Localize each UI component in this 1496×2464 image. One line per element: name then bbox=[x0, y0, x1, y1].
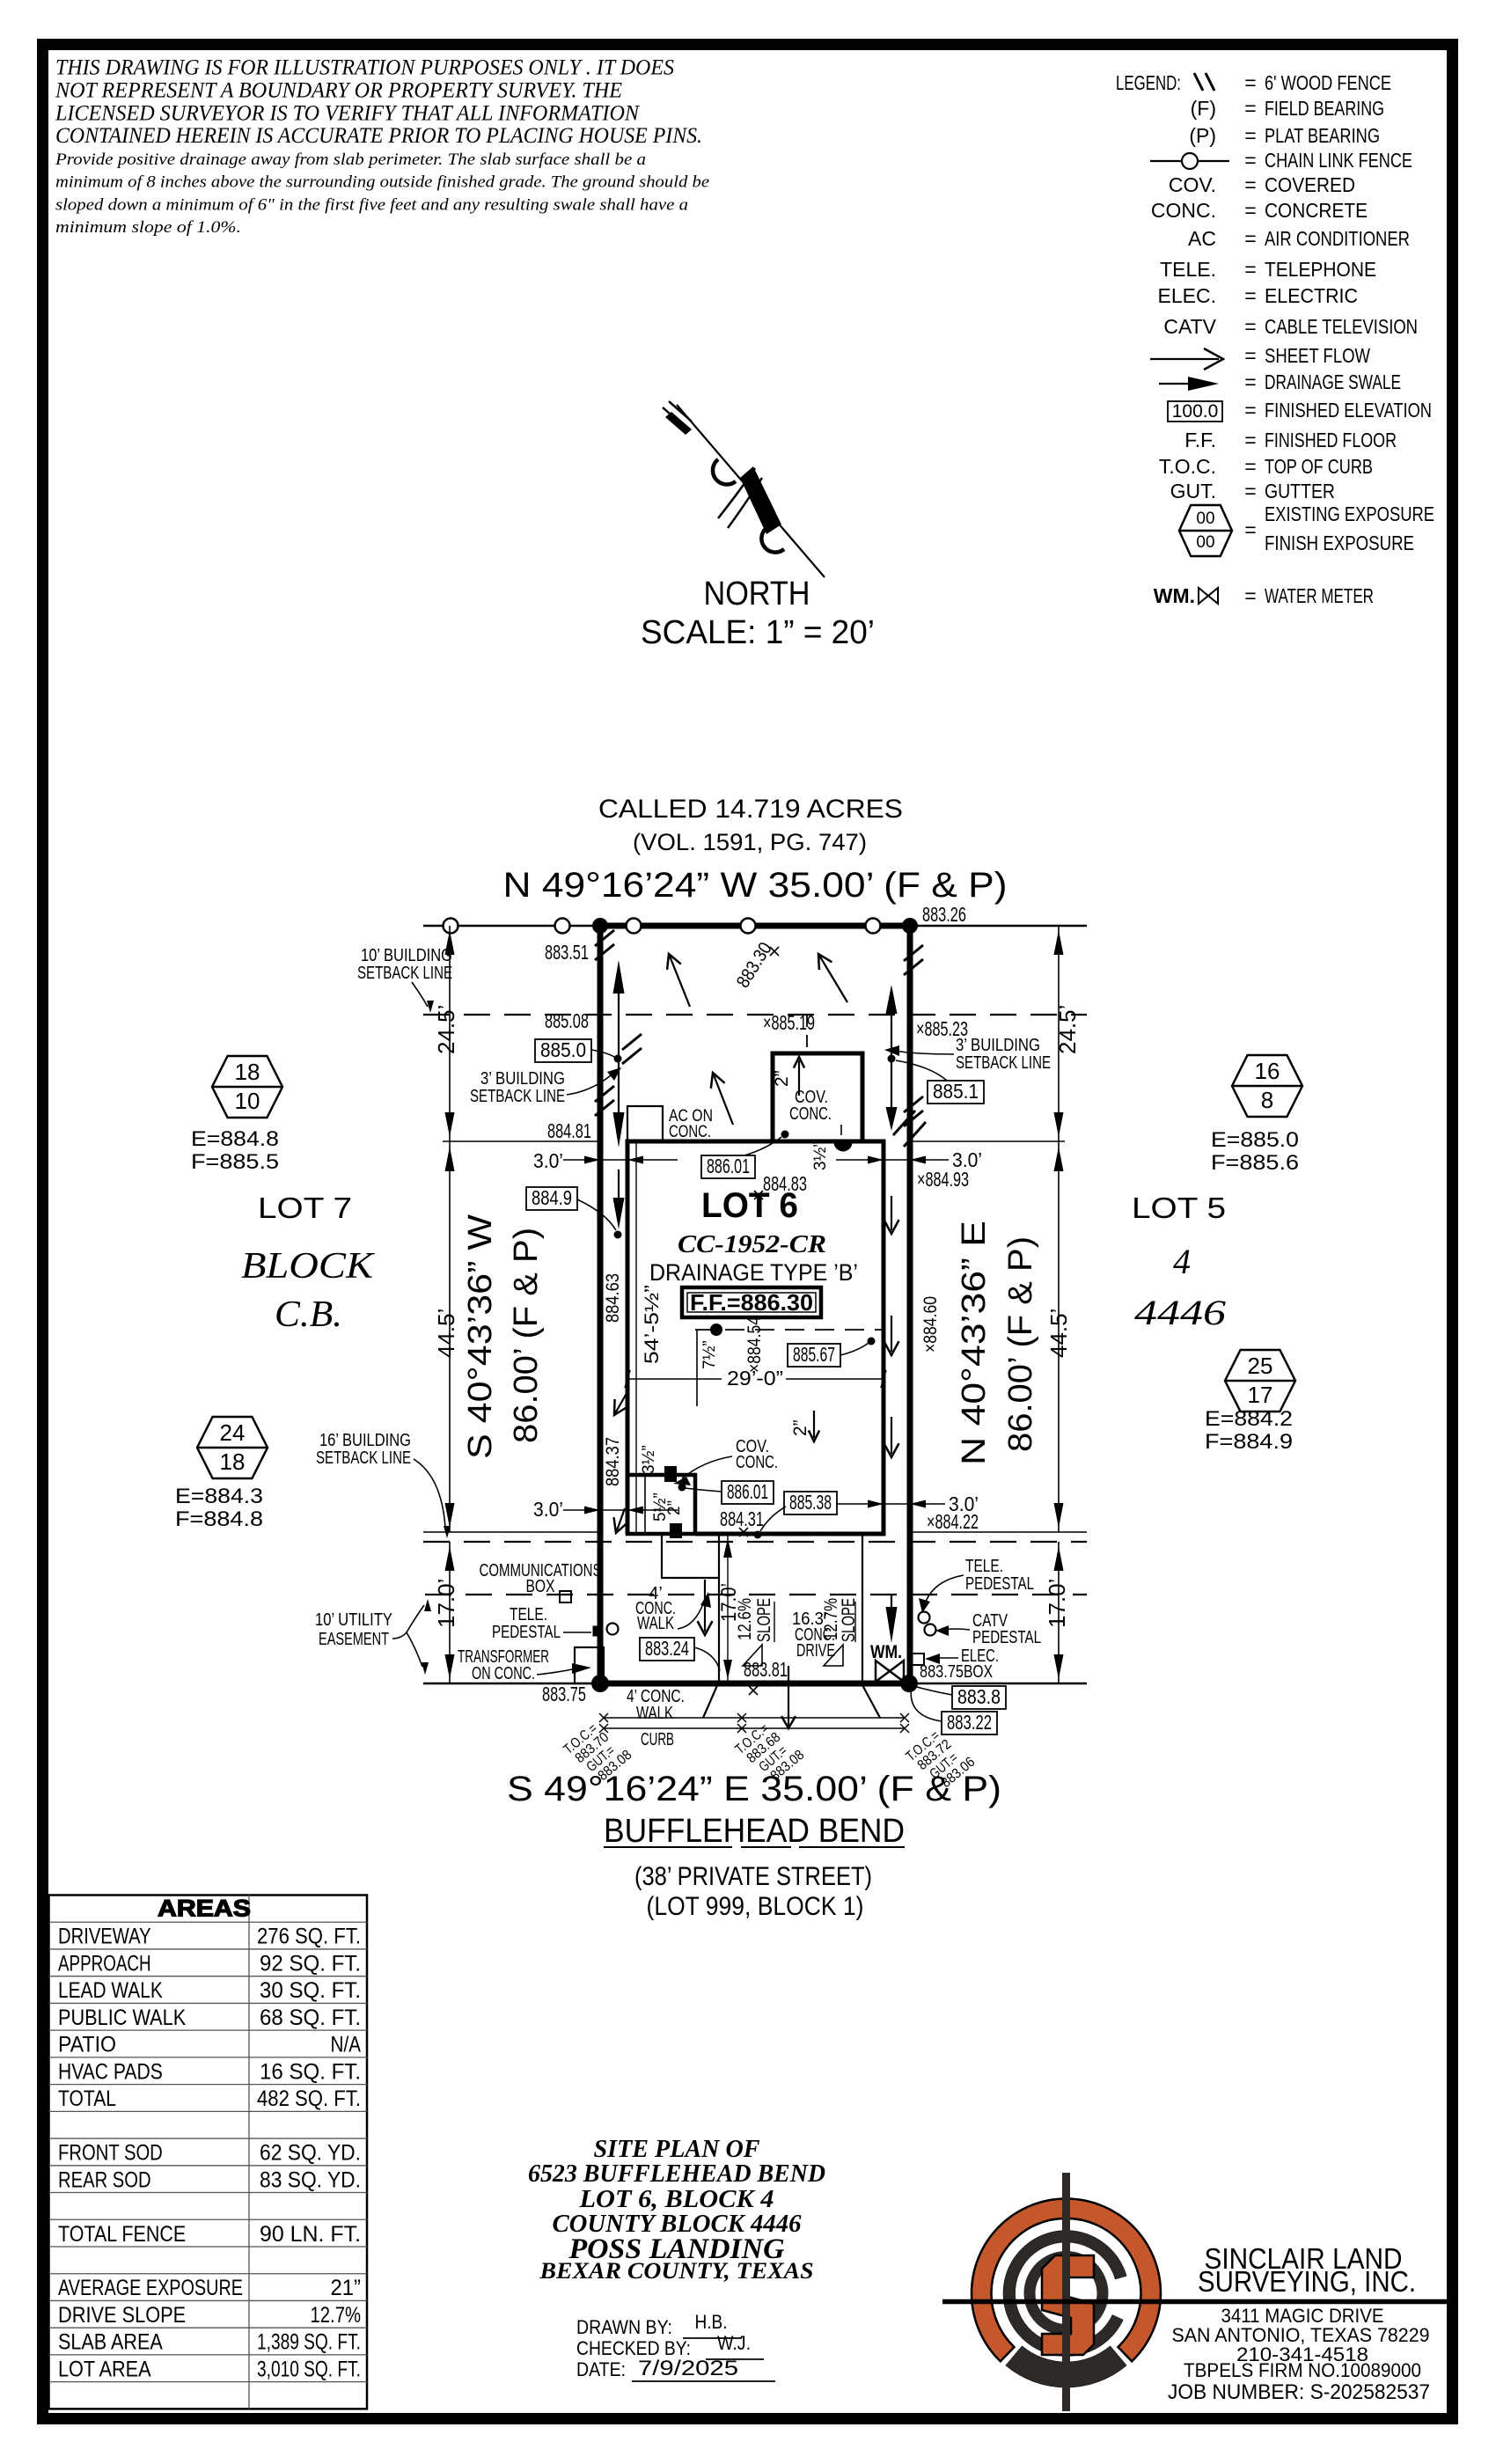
svg-text:883.81: 883.81 bbox=[744, 1658, 788, 1681]
svg-text:24.5’: 24.5’ bbox=[433, 1005, 459, 1054]
svg-text:COVERED: COVERED bbox=[1265, 173, 1355, 196]
svg-text:17.0’: 17.0’ bbox=[1044, 1579, 1070, 1628]
svg-text:CURB: CURB bbox=[641, 1730, 674, 1749]
svg-text:10: 10 bbox=[235, 1088, 260, 1114]
svg-text:62 SQ. YD.: 62 SQ. YD. bbox=[260, 2141, 361, 2166]
svg-text:SLAB AREA: SLAB AREA bbox=[58, 2330, 163, 2355]
svg-text:FINISHED FLOOR: FINISHED FLOOR bbox=[1265, 429, 1397, 451]
svg-text:886.01: 886.01 bbox=[707, 1155, 750, 1177]
svg-text:NORTH: NORTH bbox=[704, 576, 810, 612]
svg-text:CATV: CATV bbox=[1163, 315, 1216, 338]
svg-text:885.1: 885.1 bbox=[933, 1080, 979, 1103]
svg-text:E=884.8: E=884.8 bbox=[191, 1127, 279, 1151]
svg-text:=: = bbox=[1244, 518, 1256, 541]
svg-text:APPROACH: APPROACH bbox=[58, 1951, 151, 1976]
svg-text:PLAT BEARING: PLAT BEARING bbox=[1265, 124, 1380, 147]
svg-text:SHEET FLOW: SHEET FLOW bbox=[1265, 344, 1370, 367]
svg-text:E=884.3: E=884.3 bbox=[175, 1485, 263, 1508]
svg-text:CONC.: CONC. bbox=[789, 1104, 832, 1124]
svg-text:54’-5½”: 54’-5½” bbox=[641, 1285, 663, 1364]
svg-text:LEAD WALK: LEAD WALK bbox=[58, 1978, 163, 2003]
svg-text:LOT 7: LOT 7 bbox=[258, 1192, 352, 1224]
svg-text:×884.22: ×884.22 bbox=[927, 1510, 979, 1533]
svg-text:(P): (P) bbox=[1189, 124, 1216, 147]
svg-text:AIR CONDITIONER: AIR CONDITIONER bbox=[1265, 227, 1410, 250]
svg-text:×884.54: ×884.54 bbox=[744, 1316, 765, 1373]
svg-text:TBPELS FIRM NO.10089000: TBPELS FIRM NO.10089000 bbox=[1184, 2359, 1421, 2381]
svg-text:NOT REPRESENT A BOUNDARY OR PR: NOT REPRESENT A BOUNDARY OR PROPERTY SUR… bbox=[55, 78, 622, 102]
svg-text:T.O.C.: T.O.C. bbox=[1159, 455, 1216, 478]
svg-text:S 49°16’24” E 35.00’ (F &: S 49°16’24” E 35.00’ (F & P) bbox=[507, 1770, 1001, 1808]
svg-text:=: = bbox=[1244, 584, 1256, 607]
svg-text:E=885.0: E=885.0 bbox=[1211, 1128, 1299, 1152]
svg-text:2”: 2” bbox=[772, 1070, 792, 1087]
svg-text:3’ BUILDING: 3’ BUILDING bbox=[956, 1036, 1040, 1055]
svg-text:68 SQ. FT.: 68 SQ. FT. bbox=[260, 2006, 361, 2030]
svg-text:3’ BUILDING: 3’ BUILDING bbox=[480, 1069, 565, 1089]
svg-text:F.F.: F.F. bbox=[1184, 429, 1216, 451]
svg-text:F=884.8: F=884.8 bbox=[175, 1507, 263, 1531]
svg-text:PUBLIC WALK: PUBLIC WALK bbox=[58, 2006, 186, 2030]
svg-text:CALLED 14.719 ACRES: CALLED 14.719 ACRES bbox=[598, 795, 903, 824]
svg-text:86.00’ (F & P): 86.00’ (F & P) bbox=[508, 1228, 545, 1443]
svg-text:44.5’: 44.5’ bbox=[433, 1309, 459, 1358]
svg-text:SETBACK LINE: SETBACK LINE bbox=[956, 1053, 1051, 1073]
svg-text:(VOL. 1591, PG. 747): (VOL. 1591, PG. 747) bbox=[633, 829, 867, 855]
svg-text:276 SQ. FT.: 276 SQ. FT. bbox=[257, 1925, 361, 1949]
svg-text:884.37: 884.37 bbox=[603, 1437, 623, 1486]
svg-text:BUFFLEHEAD BEND: BUFFLEHEAD BEND bbox=[604, 1813, 905, 1850]
svg-text:F=885.6: F=885.6 bbox=[1211, 1151, 1299, 1175]
svg-text:LOT 6: LOT 6 bbox=[701, 1186, 798, 1225]
svg-text:=: = bbox=[1244, 124, 1256, 147]
svg-text:HVAC PADS: HVAC PADS bbox=[58, 2059, 163, 2084]
svg-text:883.75: 883.75 bbox=[920, 1662, 964, 1682]
svg-text:6523 BUFFLEHEAD BEND: 6523 BUFFLEHEAD BEND bbox=[528, 2160, 825, 2188]
svg-text:44.5’: 44.5’ bbox=[1045, 1309, 1072, 1358]
svg-text:883.75: 883.75 bbox=[542, 1683, 586, 1705]
svg-text:=: = bbox=[1244, 199, 1256, 222]
svg-text:30 SQ. FT.: 30 SQ. FT. bbox=[260, 1978, 361, 2003]
svg-text:=: = bbox=[1244, 455, 1256, 478]
svg-text:=: = bbox=[1244, 149, 1256, 172]
svg-text:100.0: 100.0 bbox=[1172, 401, 1219, 422]
svg-text:FRONT SOD: FRONT SOD bbox=[58, 2141, 163, 2166]
svg-text:=: = bbox=[1244, 399, 1256, 422]
svg-text:THIS DRAWING IS FOR ILLUSTRATI: THIS DRAWING IS FOR ILLUSTRATION PURPOSE… bbox=[55, 56, 674, 80]
svg-text:SETBACK LINE: SETBACK LINE bbox=[470, 1087, 565, 1106]
svg-text:00: 00 bbox=[1196, 510, 1214, 528]
svg-text:C.B.: C.B. bbox=[275, 1294, 342, 1335]
svg-text:SETBACK LINE: SETBACK LINE bbox=[316, 1448, 411, 1468]
svg-text:BOX: BOX bbox=[526, 1577, 555, 1596]
svg-text:minimum of 8 inches above the: minimum of 8 inches above the surroundin… bbox=[55, 173, 709, 192]
svg-text:=: = bbox=[1244, 429, 1256, 451]
svg-text:TOP OF CURB: TOP OF CURB bbox=[1265, 455, 1373, 478]
svg-text:1,389 SQ. FT.: 1,389 SQ. FT. bbox=[257, 2330, 361, 2355]
svg-text:PEDESTAL: PEDESTAL bbox=[972, 1628, 1041, 1647]
svg-text:CONC.: CONC. bbox=[1151, 199, 1216, 222]
svg-text:LEGEND:: LEGEND: bbox=[1116, 71, 1181, 94]
svg-text:Provide positive drainage away: Provide positive drainage away from slab… bbox=[55, 150, 646, 169]
svg-text:PEDESTAL: PEDESTAL bbox=[492, 1623, 561, 1642]
svg-text:TELE.: TELE. bbox=[1160, 258, 1216, 281]
svg-text:17.0’: 17.0’ bbox=[433, 1579, 459, 1628]
svg-text:EASEMENT: EASEMENT bbox=[319, 1630, 389, 1649]
svg-text:883.26: 883.26 bbox=[922, 903, 966, 926]
svg-text:S 40°43’36” W: S 40°43’36” W bbox=[462, 1214, 499, 1459]
svg-text:3,010 SQ. FT.: 3,010 SQ. FT. bbox=[257, 2357, 361, 2381]
svg-text:4: 4 bbox=[1173, 1242, 1191, 1281]
svg-text:N 49°16’24” W 35.00’ (F &: N 49°16’24” W 35.00’ (F & P) bbox=[503, 866, 1008, 905]
svg-text:883.8: 883.8 bbox=[957, 1685, 1001, 1708]
svg-text:885.0: 885.0 bbox=[540, 1038, 586, 1061]
svg-text:=: = bbox=[1244, 71, 1256, 94]
svg-text:17.0’: 17.0’ bbox=[717, 1583, 741, 1622]
svg-text:18: 18 bbox=[235, 1059, 260, 1085]
svg-text:×884.93: ×884.93 bbox=[917, 1168, 969, 1191]
svg-text:N/A: N/A bbox=[331, 2033, 362, 2057]
svg-text:12.7%: 12.7% bbox=[311, 2303, 362, 2328]
svg-text:24: 24 bbox=[220, 1419, 246, 1446]
svg-text:SURVEYING, INC.: SURVEYING, INC. bbox=[1198, 2265, 1416, 2298]
svg-text:92 SQ. FT.: 92 SQ. FT. bbox=[260, 1951, 361, 1976]
svg-text:E=884.2: E=884.2 bbox=[1205, 1407, 1293, 1431]
svg-text:25: 25 bbox=[1248, 1353, 1273, 1379]
svg-text:AREAS: AREAS bbox=[158, 1896, 251, 1922]
svg-text:PATIO: PATIO bbox=[58, 2033, 116, 2057]
svg-text:DRAWN BY:: DRAWN BY: bbox=[576, 2316, 672, 2338]
svg-text:885.67: 885.67 bbox=[793, 1343, 835, 1366]
svg-text:LICENSED SURVEYOR IS TO VERIFY: LICENSED SURVEYOR IS TO VERIFY THAT ALL … bbox=[55, 101, 640, 125]
svg-text:3.0’: 3.0’ bbox=[533, 1149, 563, 1172]
svg-text:CONC.: CONC. bbox=[736, 1453, 778, 1472]
svg-text:BOX: BOX bbox=[964, 1662, 993, 1682]
svg-text:×885.19: ×885.19 bbox=[763, 1011, 815, 1034]
svg-text:884.31: 884.31 bbox=[720, 1507, 764, 1530]
svg-text:83 SQ. YD.: 83 SQ. YD. bbox=[260, 2167, 361, 2192]
svg-text:2”: 2” bbox=[790, 1419, 810, 1436]
svg-text:CHAIN LINK FENCE: CHAIN LINK FENCE bbox=[1265, 149, 1412, 172]
svg-text:ELECTRIC: ELECTRIC bbox=[1265, 284, 1358, 307]
svg-text:18: 18 bbox=[220, 1448, 246, 1475]
svg-text:LOT 5: LOT 5 bbox=[1132, 1192, 1226, 1224]
svg-text:SETBACK LINE: SETBACK LINE bbox=[357, 964, 452, 983]
svg-text:DATE:: DATE: bbox=[576, 2358, 626, 2380]
svg-text:=: = bbox=[1244, 315, 1256, 338]
svg-text:=: = bbox=[1244, 97, 1256, 120]
svg-text:884.63: 884.63 bbox=[603, 1273, 623, 1323]
svg-text:=: = bbox=[1244, 370, 1256, 393]
svg-text:90 LN. FT.: 90 LN. FT. bbox=[260, 2222, 361, 2247]
svg-text:(F): (F) bbox=[1191, 97, 1216, 120]
svg-text:6' WOOD FENCE: 6' WOOD FENCE bbox=[1265, 71, 1391, 94]
svg-text:DRIVE SLOPE: DRIVE SLOPE bbox=[58, 2303, 186, 2328]
svg-text:884.81: 884.81 bbox=[547, 1119, 591, 1142]
svg-text:REAR SOD: REAR SOD bbox=[58, 2167, 151, 2192]
svg-text:16: 16 bbox=[1255, 1058, 1280, 1084]
svg-text:CONCRETE: CONCRETE bbox=[1265, 199, 1368, 222]
svg-text:CONTAINED HEREIN IS ACCURATE P: CONTAINED HEREIN IS ACCURATE PRIOR TO PL… bbox=[55, 124, 702, 148]
svg-text:16 SQ. FT.: 16 SQ. FT. bbox=[260, 2059, 361, 2084]
svg-text:CONC.: CONC. bbox=[669, 1123, 711, 1141]
svg-text:885.08: 885.08 bbox=[545, 1009, 589, 1032]
svg-text:FIELD BEARING: FIELD BEARING bbox=[1265, 97, 1384, 120]
svg-text:=: = bbox=[1244, 344, 1256, 367]
svg-text:DRIVE: DRIVE bbox=[796, 1641, 835, 1661]
svg-text:24.5’: 24.5’ bbox=[1054, 1005, 1081, 1054]
svg-text:WALK: WALK bbox=[636, 1704, 673, 1723]
svg-text:=: = bbox=[1244, 227, 1256, 250]
svg-text:886.01: 886.01 bbox=[727, 1480, 768, 1503]
svg-text:SLOPE: SLOPE bbox=[754, 1598, 774, 1642]
svg-text:W.J.: W.J. bbox=[717, 2332, 751, 2354]
svg-text:sloped down a minimum of 6" in: sloped down a minimum of 6" in the first… bbox=[55, 195, 688, 214]
svg-text:883.22: 883.22 bbox=[947, 1711, 992, 1734]
svg-text:WATER METER: WATER METER bbox=[1265, 584, 1374, 607]
svg-text:21”: 21” bbox=[331, 2276, 362, 2300]
svg-text:TELE.: TELE. bbox=[965, 1557, 1003, 1576]
svg-text:WM.: WM. bbox=[1154, 584, 1195, 607]
svg-text:COV.: COV. bbox=[1169, 173, 1216, 196]
svg-text:F.F.=886.30: F.F.=886.30 bbox=[690, 1289, 813, 1316]
svg-text:H.B.: H.B. bbox=[695, 2311, 728, 2333]
svg-text:TELE.: TELE. bbox=[510, 1605, 547, 1624]
svg-text:(LOT 999, BLOCK 1): (LOT 999, BLOCK 1) bbox=[647, 1892, 864, 1921]
svg-text:3½”: 3½” bbox=[811, 1141, 830, 1170]
svg-text:3.0’: 3.0’ bbox=[533, 1498, 563, 1521]
svg-text:00: 00 bbox=[1196, 533, 1214, 552]
svg-text:GUTTER: GUTTER bbox=[1265, 480, 1335, 502]
svg-text:DRIVEWAY: DRIVEWAY bbox=[58, 1925, 151, 1949]
svg-text:16’ BUILDING: 16’ BUILDING bbox=[319, 1431, 411, 1450]
svg-text:884.9: 884.9 bbox=[532, 1186, 572, 1209]
svg-text:F=885.5: F=885.5 bbox=[191, 1150, 279, 1174]
svg-text:JOB NUMBER: S-202582537: JOB NUMBER: S-202582537 bbox=[1168, 2380, 1430, 2404]
svg-text:10’ UTILITY: 10’ UTILITY bbox=[315, 1610, 392, 1630]
svg-text:GUT.: GUT. bbox=[1170, 480, 1216, 502]
svg-text:=: = bbox=[1244, 173, 1256, 196]
svg-text:TELEPHONE: TELEPHONE bbox=[1265, 258, 1376, 281]
svg-text:EXISTING EXPOSURE: EXISTING EXPOSURE bbox=[1265, 502, 1434, 525]
svg-text:885.38: 885.38 bbox=[789, 1491, 832, 1514]
svg-text:(38’ PRIVATE STREET): (38’ PRIVATE STREET) bbox=[634, 1862, 872, 1891]
svg-text:TOTAL: TOTAL bbox=[58, 2086, 116, 2111]
svg-text:=: = bbox=[1244, 258, 1256, 281]
svg-text:CABLE TELEVISION: CABLE TELEVISION bbox=[1265, 315, 1418, 338]
svg-text:2”: 2” bbox=[665, 1500, 684, 1515]
svg-text:BEXAR COUNTY, TEXAS: BEXAR COUNTY, TEXAS bbox=[539, 2258, 813, 2284]
svg-text:PEDESTAL: PEDESTAL bbox=[965, 1574, 1034, 1594]
svg-text:CC-1952-CR: CC-1952-CR bbox=[678, 1231, 826, 1258]
svg-text:×884.60: ×884.60 bbox=[920, 1296, 941, 1353]
svg-text:=: = bbox=[1244, 284, 1256, 307]
svg-text:minimum slope of 1.0%.: minimum slope of 1.0%. bbox=[55, 218, 241, 237]
svg-text:7/9/2025: 7/9/2025 bbox=[638, 2357, 738, 2380]
svg-text:10’ BUILDING: 10’ BUILDING bbox=[361, 946, 452, 965]
svg-text:4446: 4446 bbox=[1134, 1293, 1226, 1332]
svg-text:883.51: 883.51 bbox=[545, 941, 589, 964]
svg-text:DRAINAGE TYPE ’B’: DRAINAGE TYPE ’B’ bbox=[649, 1259, 858, 1286]
svg-text:ON CONC.: ON CONC. bbox=[472, 1664, 535, 1683]
svg-text:3½”: 3½” bbox=[640, 1445, 658, 1474]
svg-text:N 40°43’36” E: N 40°43’36” E bbox=[956, 1221, 993, 1465]
svg-text:FINISH EXPOSURE: FINISH EXPOSURE bbox=[1265, 532, 1414, 554]
svg-text:7½”: 7½” bbox=[700, 1340, 719, 1369]
svg-text:WALK: WALK bbox=[637, 1614, 674, 1633]
svg-text:F=884.9: F=884.9 bbox=[1205, 1430, 1293, 1454]
svg-text:LOT AREA: LOT AREA bbox=[58, 2357, 151, 2381]
svg-text:86.00’ (F & P): 86.00’ (F & P) bbox=[1002, 1236, 1039, 1452]
svg-text:TOTAL FENCE: TOTAL FENCE bbox=[58, 2222, 186, 2247]
svg-text:AVERAGE EXPOSURE: AVERAGE EXPOSURE bbox=[58, 2276, 243, 2300]
svg-text:FINISHED ELEVATION: FINISHED ELEVATION bbox=[1265, 399, 1432, 422]
svg-text:8: 8 bbox=[1261, 1087, 1273, 1113]
svg-text:17: 17 bbox=[1248, 1382, 1273, 1408]
svg-text:883.24: 883.24 bbox=[645, 1637, 689, 1660]
svg-text:DRAINAGE SWALE: DRAINAGE SWALE bbox=[1265, 370, 1401, 393]
svg-text:BLOCK: BLOCK bbox=[241, 1246, 375, 1287]
svg-text:SCALE: 1” = 20’: SCALE: 1” = 20’ bbox=[641, 614, 875, 651]
svg-text:ELEC.: ELEC. bbox=[1158, 284, 1216, 307]
svg-text:=: = bbox=[1244, 480, 1256, 502]
svg-text:482 SQ. FT.: 482 SQ. FT. bbox=[257, 2086, 361, 2111]
svg-text:AC: AC bbox=[1188, 227, 1216, 250]
